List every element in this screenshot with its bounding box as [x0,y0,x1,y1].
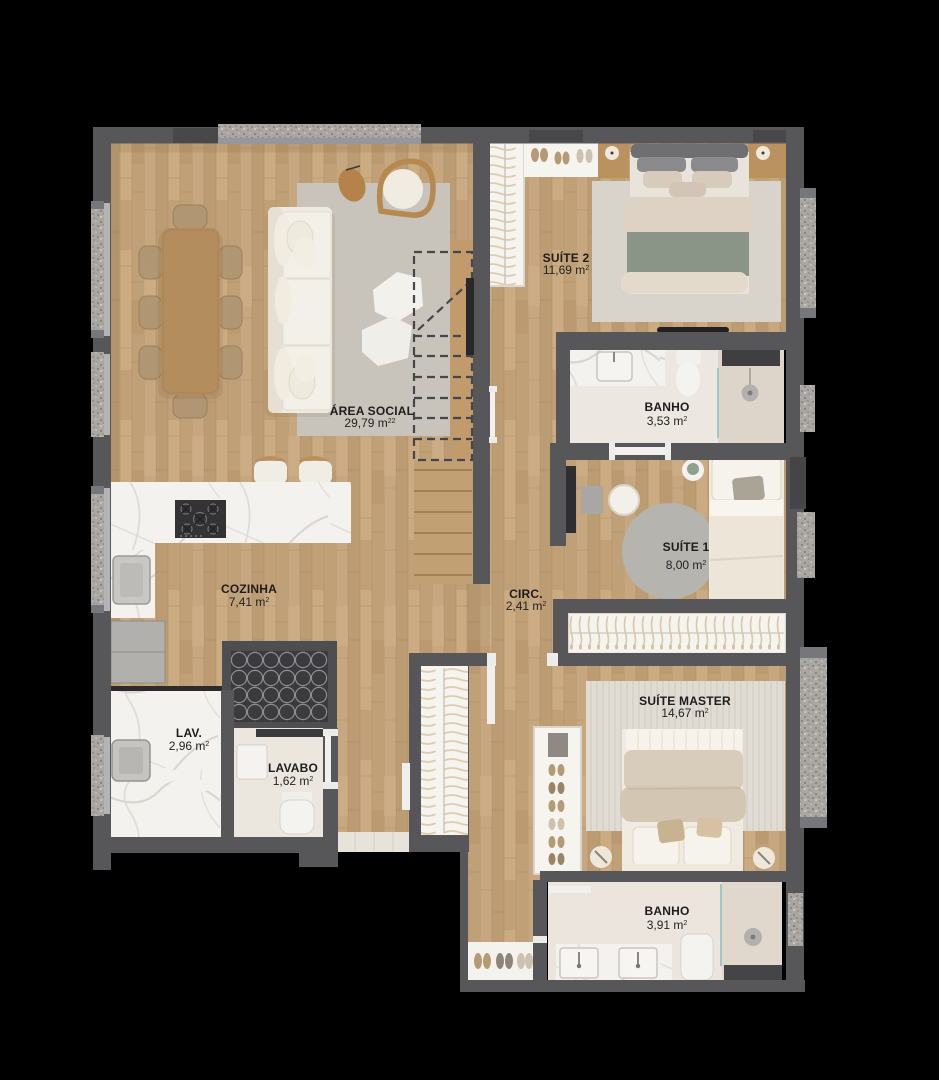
svg-text:BANHO: BANHO [645,904,690,918]
svg-text:LAV.: LAV. [176,726,202,740]
svg-text:COZINHA: COZINHA [221,582,277,596]
svg-text:11,69 m2: 11,69 m2 [543,263,589,277]
svg-text:7,41 m2: 7,41 m2 [229,595,270,609]
svg-text:2,41 m2: 2,41 m2 [506,599,547,613]
svg-text:8,00 m2: 8,00 m2 [666,558,707,572]
svg-text:SUÍTE 1: SUÍTE 1 [663,539,710,554]
svg-text:14,67 m2: 14,67 m2 [661,706,708,720]
svg-text:1,62 m2: 1,62 m2 [273,774,314,788]
svg-text:2,96 m2: 2,96 m2 [169,739,210,753]
svg-text:LAVABO: LAVABO [268,761,318,775]
svg-text:3,53 m2: 3,53 m2 [647,414,688,428]
svg-text:BANHO: BANHO [645,400,690,414]
svg-text:3,91 m2: 3,91 m2 [647,918,688,932]
